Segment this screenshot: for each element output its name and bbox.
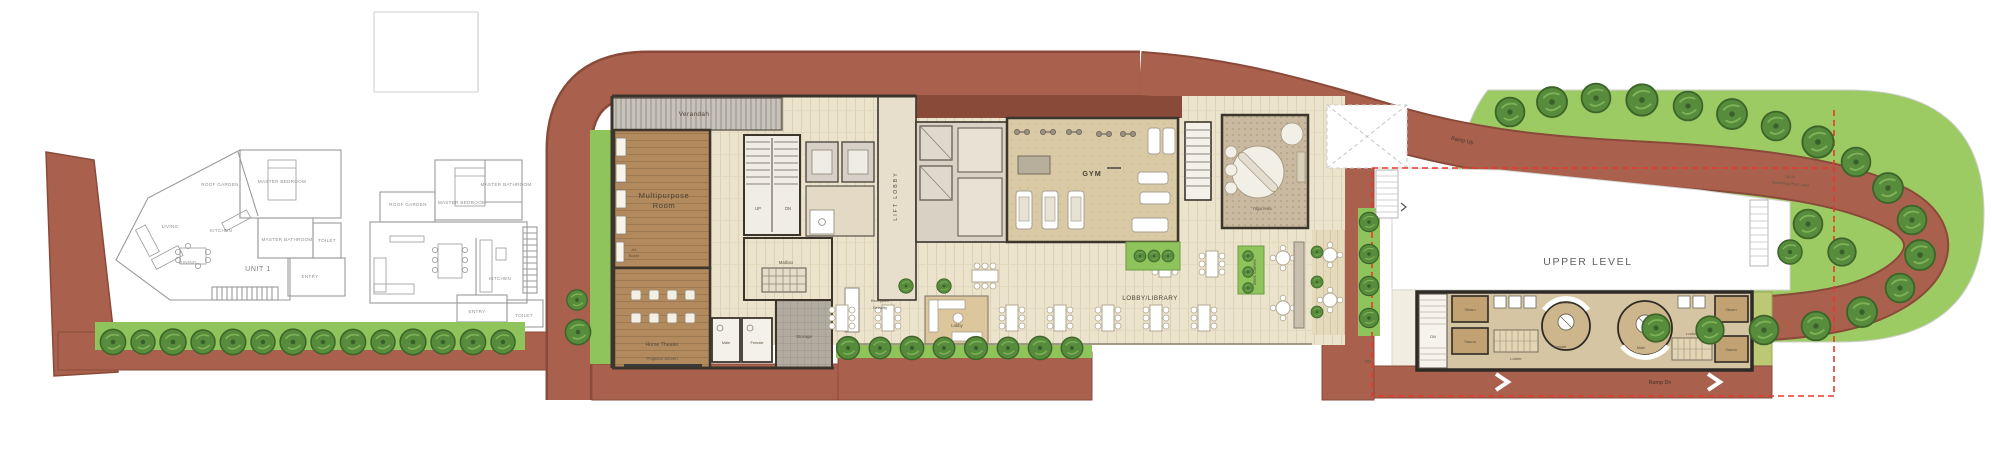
home-theater <box>614 268 710 368</box>
tree-icon <box>965 337 988 360</box>
tree-icon <box>1537 87 1567 117</box>
tree-icon <box>1359 308 1378 327</box>
tree-icon <box>280 329 306 355</box>
fixtures-left <box>1494 296 1536 308</box>
home-theater-label: Home Theater <box>645 342 678 348</box>
tree-icon <box>431 330 455 354</box>
tree-icon <box>1243 283 1254 294</box>
tree-icon <box>1886 274 1915 303</box>
unit1-master-bathroom-label: MASTER BATHROOM <box>261 237 312 242</box>
maroon-band-north <box>916 96 1182 118</box>
unit1-entry-label: ENTRY <box>302 274 319 279</box>
tree-icon <box>1243 267 1254 278</box>
clubhouse-building: Verandah Multipurpose Room Art Board Hom… <box>612 96 1345 368</box>
pool-level-stair <box>1750 200 1768 266</box>
tree-icon <box>900 336 923 359</box>
projector-screen-label: Projector Screen <box>646 356 678 361</box>
unit1-dining-label: DINING <box>179 260 197 265</box>
lobby-library-label: LOBBY/LIBRARY <box>1122 295 1178 302</box>
ramp-junction <box>1327 105 1407 168</box>
tree-icon <box>1582 84 1611 113</box>
tree-icon <box>1847 297 1877 327</box>
unit2-master-bedroom-label: MASTER BEDROOM <box>438 200 486 205</box>
female-changing <box>1542 299 1590 350</box>
verandah-label: Verandah <box>679 111 710 118</box>
upper-dn-road-label: DN <box>1365 359 1371 364</box>
unit1-toilet-label: TOILET <box>318 238 336 243</box>
unit1-living-block <box>116 150 290 300</box>
unit2-kitchen-label: KITCHEN <box>489 276 511 281</box>
tree-icon <box>1778 240 1802 264</box>
tree-icon <box>1905 240 1935 270</box>
tree-icon <box>1311 276 1323 288</box>
multipurpose-room-label-1: Multipurpose <box>639 191 690 200</box>
mailbox-label: Mailbox <box>779 260 794 265</box>
tree-icon <box>933 337 955 359</box>
adjacent-structure-outline <box>374 12 478 92</box>
tree-icon <box>1717 99 1747 129</box>
tree-icon <box>220 329 245 354</box>
storage-label: Storage <box>796 334 813 339</box>
unit2-stair <box>523 227 537 293</box>
unit2-entry-label: ENTRY <box>469 309 486 314</box>
tree-icon <box>1061 337 1083 359</box>
stair-up-label: UP <box>755 206 761 211</box>
unit2-plan <box>370 12 543 327</box>
site-plan: ROOF GARDEN MASTER BEDROOM MASTER BATHRO… <box>0 0 1996 469</box>
tree-icon <box>251 330 275 354</box>
unit1-living-label: LIVING <box>162 224 179 229</box>
tree-icon <box>1642 314 1670 342</box>
changing-dn-stair <box>1419 294 1447 368</box>
tree-icon <box>1873 173 1903 203</box>
tree-icon <box>1802 126 1833 157</box>
tree-icon <box>191 330 215 354</box>
tree-icon <box>1148 250 1160 262</box>
gym-east-stair <box>1185 122 1211 200</box>
upper-level-label: UPPER LEVEL <box>1543 256 1632 268</box>
tree-icon <box>1162 250 1174 262</box>
female-toilet-label: Female <box>751 340 764 345</box>
tree-icon <box>340 329 365 354</box>
lift-lobby-label: LIFT LOBBY <box>893 171 899 220</box>
grass-strip-clubhouse-west <box>590 130 612 364</box>
tree-icon <box>1311 306 1323 318</box>
tree-icon <box>1134 250 1146 262</box>
sauna-left-label: Sauna <box>1464 339 1476 344</box>
tree-icon <box>1626 84 1657 115</box>
tree-icon <box>1028 336 1051 359</box>
unit1-kitchen-label: KITCHEN <box>210 228 232 233</box>
gym-label: GYM <box>1082 169 1101 178</box>
unit2-toilet-label: TOILET <box>515 313 533 318</box>
tree-icon <box>1898 206 1927 235</box>
male-changing-label: Male <box>1637 345 1645 350</box>
unit2-master-bathroom-label: MASTER BATHROOM <box>480 182 531 187</box>
walkway-west-of-changing <box>1392 290 1417 370</box>
tree-icon <box>1750 316 1779 345</box>
reception-label-1: Reception/ <box>871 298 891 303</box>
stair-dn-label: DN <box>785 206 791 211</box>
tree-icon <box>869 337 891 359</box>
yoga-area-label: Yoga Area <box>1252 206 1272 211</box>
unit1-furniture <box>136 160 296 269</box>
multipurpose-room-label-2: Room <box>653 201 676 210</box>
tree-icon <box>1842 148 1871 177</box>
sauna-right-label: Sauna <box>1725 347 1737 352</box>
unit1-stair <box>212 287 278 300</box>
book-shelves <box>1294 242 1304 328</box>
tree-icon <box>400 329 426 355</box>
unit1-title: UNIT 1 <box>245 266 271 273</box>
main-stair <box>744 135 800 235</box>
tree-icon <box>371 330 395 354</box>
tree-icon <box>1828 238 1856 266</box>
locker-left <box>1494 330 1538 352</box>
tree-icon <box>1674 92 1703 121</box>
art-board-label-2: Board <box>629 253 639 258</box>
steam-right-label: Steam <box>1725 307 1736 312</box>
tree-icon <box>567 290 587 310</box>
tree-icon <box>997 337 1019 359</box>
lobby-label: Lobby <box>951 323 963 328</box>
tree-icon <box>1696 316 1724 344</box>
tree-icon <box>131 330 155 354</box>
tree-icon <box>160 329 186 355</box>
tree-icon <box>837 337 860 360</box>
unit2-roof-garden-label: ROOF GARDEN <box>389 202 427 207</box>
tree-icon <box>937 279 951 293</box>
steam-left-label: Steam <box>1464 307 1475 312</box>
tree-icon <box>1794 210 1823 239</box>
unit2-master-bedroom <box>435 160 522 220</box>
reception-label-2: Security <box>873 305 887 310</box>
tree-icon <box>1762 112 1791 141</box>
locker-left-label: Locker <box>1510 356 1522 361</box>
tree-icon <box>100 329 125 354</box>
service-zone <box>916 122 1007 242</box>
tree-icon <box>1243 251 1254 262</box>
tree-icon <box>565 319 590 344</box>
changing-dn-label: DN <box>1430 334 1436 339</box>
unit1-master-bedroom-label: MASTER BEDROOM <box>258 179 306 184</box>
unit2-main-block <box>370 222 527 303</box>
tree-icon <box>1496 98 1525 127</box>
tree-icon <box>1311 246 1323 258</box>
ramp-dn-label: Ramp Dn <box>1649 380 1672 386</box>
pool-level-label-1: Up to <box>1785 174 1795 180</box>
tree-icon <box>1359 276 1378 295</box>
tree-icon <box>1359 244 1378 263</box>
tree-icon <box>899 279 913 293</box>
unit1-roof-garden-label: ROOF GARDEN <box>201 182 239 187</box>
shower-female-label: Shower <box>1559 300 1573 305</box>
tree-icon <box>1802 312 1831 341</box>
unit2-roof-garden <box>380 192 435 222</box>
road-under-lobby <box>838 352 1092 400</box>
female-changing-label: Female <box>1554 344 1567 349</box>
tree-icon <box>460 329 485 354</box>
tree-icon <box>491 330 515 354</box>
tree-icon <box>1359 212 1378 231</box>
unit1-roof-garden-divider <box>238 152 258 216</box>
tree-icon <box>311 330 335 354</box>
male-toilet-label: Male <box>722 340 730 345</box>
